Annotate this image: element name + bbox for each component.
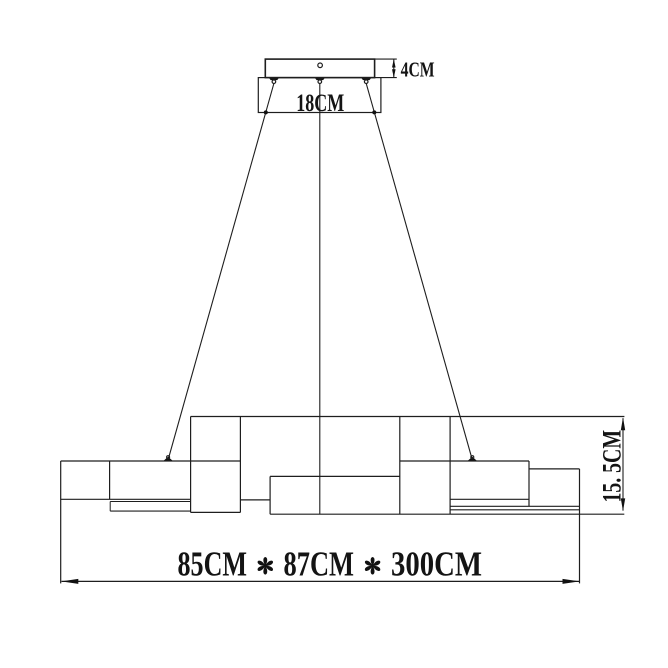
svg-text:15. 5CM: 15. 5CM [598,430,627,503]
svg-text:300CM: 300CM [391,545,482,583]
svg-text:4CM: 4CM [401,57,435,81]
svg-text:18CM: 18CM [296,88,344,117]
svg-text:85CM: 85CM [178,545,248,583]
svg-text:87CM: 87CM [284,545,355,583]
